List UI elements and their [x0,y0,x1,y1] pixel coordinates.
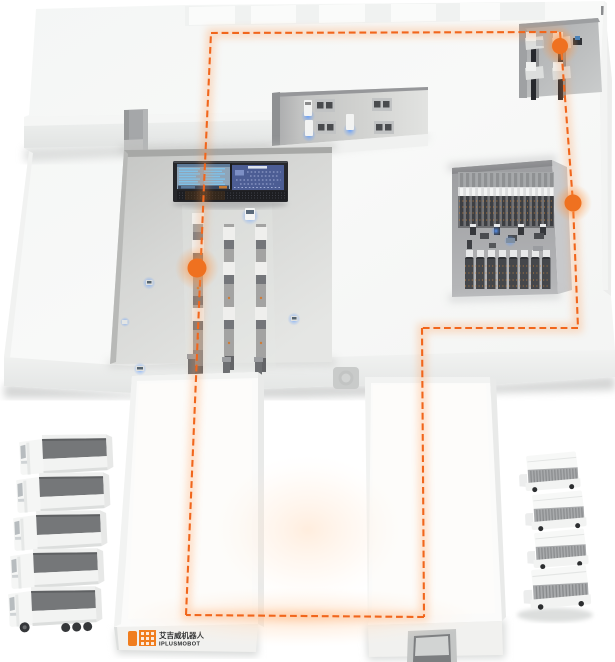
svg-text:IPLUSMOBOT: IPLUSMOBOT [159,642,200,648]
